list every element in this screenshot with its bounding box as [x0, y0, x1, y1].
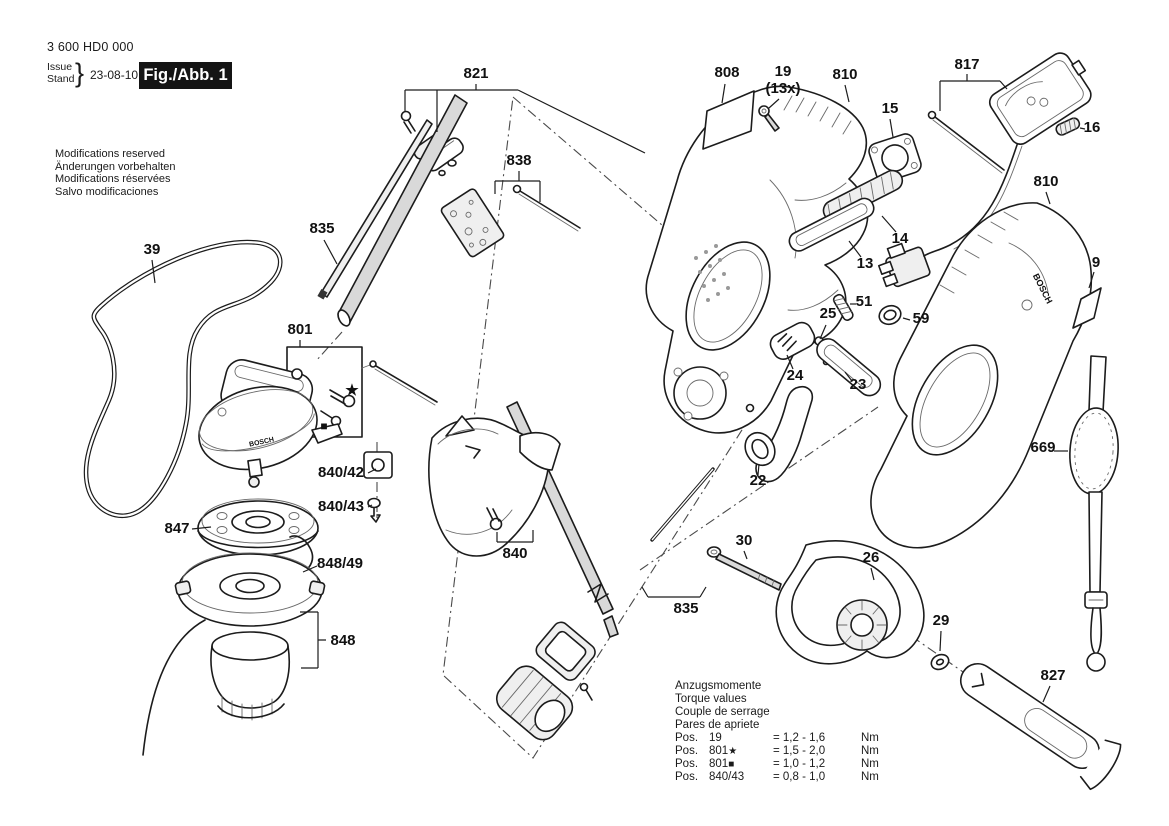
part-label-16: 16 [1084, 119, 1101, 136]
part-label-840/42: 840/42 [318, 464, 364, 481]
part-label-821: 821 [463, 65, 488, 82]
part-26-loop-handle [776, 541, 924, 664]
part-30-screw [708, 547, 782, 590]
part-label-669: 669 [1030, 439, 1055, 456]
part-label-848: 848 [330, 632, 355, 649]
part-840-42-clamp [364, 452, 392, 478]
part-label-808: 808 [714, 64, 739, 81]
part-29-washer [929, 652, 951, 672]
part-label-19: 19 [775, 63, 792, 80]
part-label-star-marker: ★ [345, 382, 359, 399]
part-label-23: 23 [850, 376, 867, 393]
part-59-oring [877, 303, 904, 327]
part-label-848/49: 848/49 [317, 555, 363, 572]
part-838-foam-and-tie [440, 186, 580, 259]
part-label-24: 24 [787, 367, 804, 384]
part-label-30: 30 [736, 532, 753, 549]
part-label-835-lower: 835 [673, 600, 698, 617]
part-label-13: 13 [857, 255, 874, 272]
part-label-22: 22 [750, 472, 767, 489]
part-label-26: 26 [863, 549, 880, 566]
parts-diagram-page: { "header": { "type_number": "3 600 HD0 … [0, 0, 1169, 826]
part-label-838: 838 [506, 152, 531, 169]
part-label-15: 15 [882, 100, 899, 117]
part-label-827: 827 [1040, 667, 1065, 684]
part-840-43-screw [368, 499, 380, 523]
exploded-view-drawing: 82180819(13x)810817151681083883539801141… [0, 0, 1169, 826]
part-label-19-qty: (13x) [765, 80, 800, 97]
part-label-29: 29 [933, 612, 950, 629]
part-label-801: 801 [287, 321, 312, 338]
part-810-left-housing [646, 86, 867, 433]
part-label-51: 51 [856, 293, 873, 310]
part-label-59: 59 [913, 310, 930, 327]
part-label-810-right: 810 [1033, 173, 1058, 190]
part-label-817: 817 [954, 56, 979, 73]
part-label-14: 14 [892, 230, 909, 247]
part-label-square-marker: ■ [320, 419, 327, 433]
part-label-840/43: 840/43 [318, 498, 364, 515]
part-label-39: 39 [144, 241, 161, 258]
part-label-835-upper: 835 [309, 220, 334, 237]
part-label-9: 9 [1092, 254, 1100, 271]
part-label-847: 847 [164, 520, 189, 537]
part-label-25: 25 [820, 305, 837, 322]
part-label-840: 840 [502, 545, 527, 562]
part-848-spool-assembly [175, 553, 325, 720]
part-840-guard [429, 416, 560, 556]
part-847-spool-cover [198, 499, 318, 555]
part-label-810-left: 810 [832, 66, 857, 83]
shaft-coupler [533, 619, 598, 683]
part-669-strap [1067, 356, 1121, 671]
part-23-lever [812, 334, 884, 400]
